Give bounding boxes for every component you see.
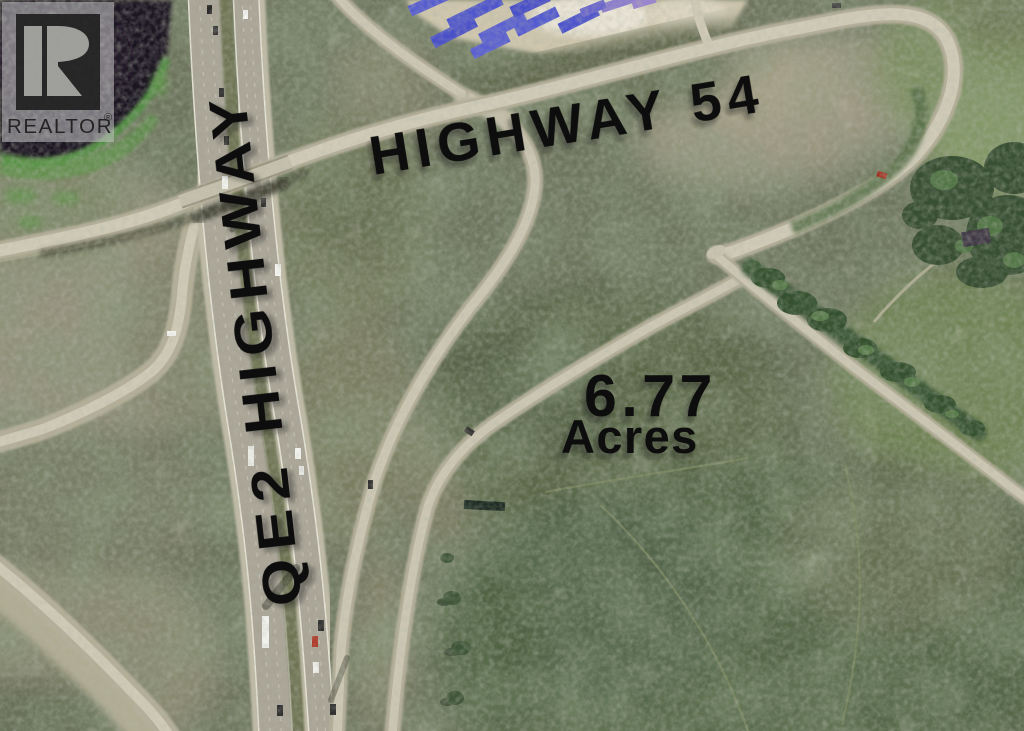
svg-text:Acres: Acres <box>561 410 699 463</box>
svg-text:®: ® <box>104 112 112 124</box>
svg-text:REALTOR: REALTOR <box>7 115 113 138</box>
